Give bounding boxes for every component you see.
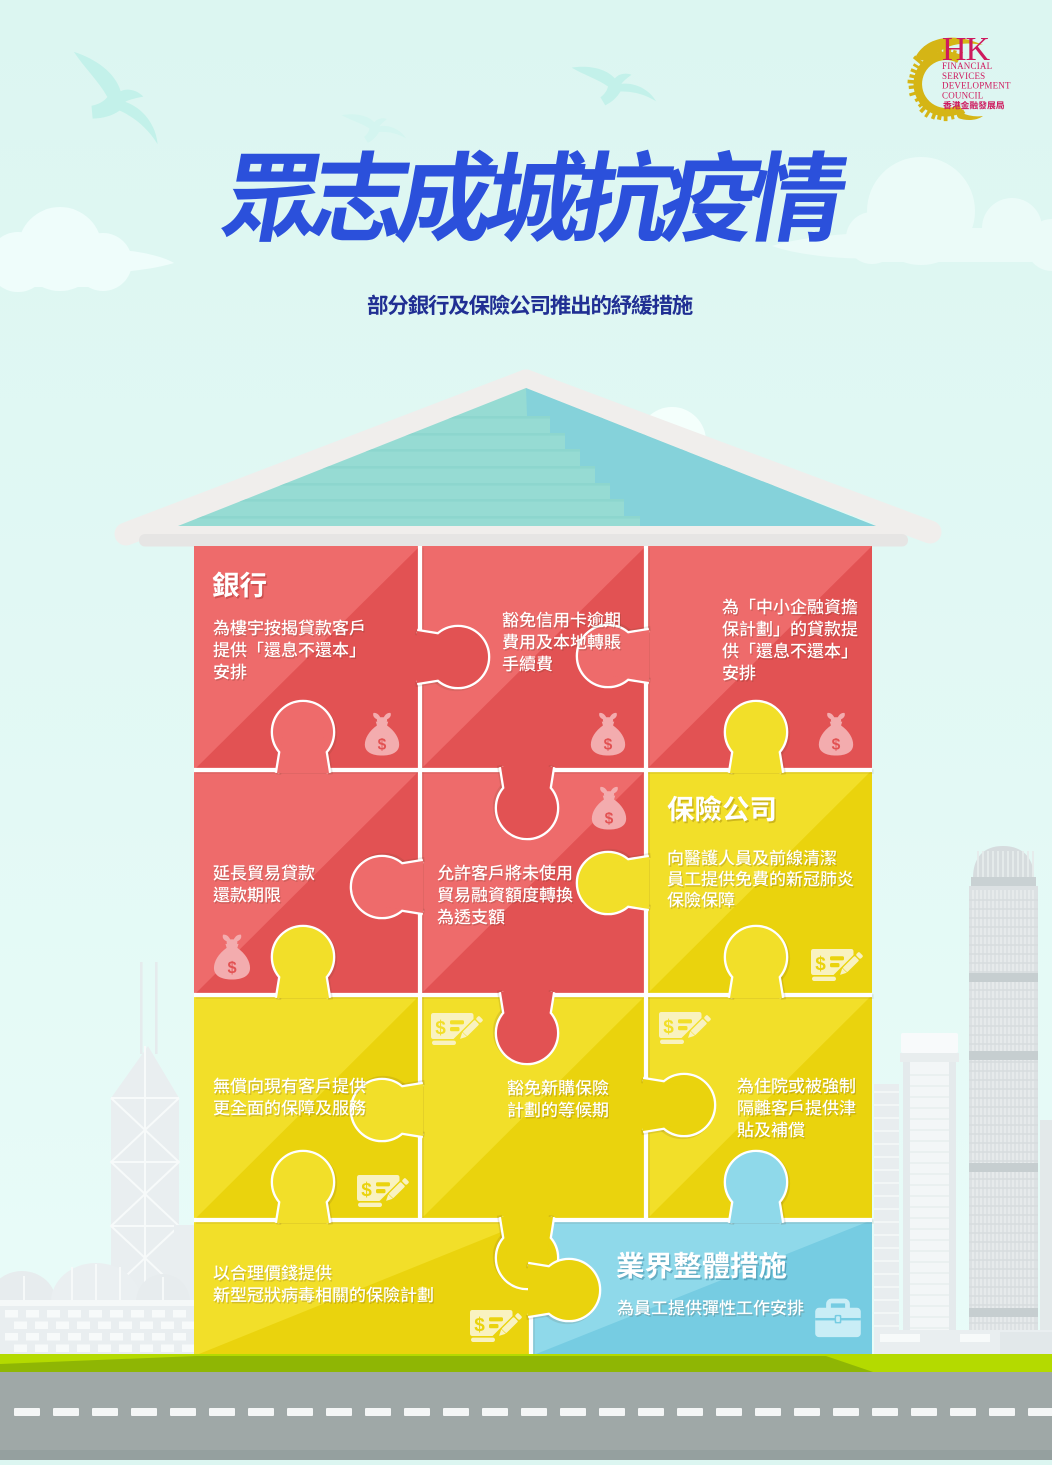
svg-text:$: $ bbox=[361, 1180, 372, 1201]
svg-text:$: $ bbox=[378, 736, 387, 753]
svg-text:SERVICES: SERVICES bbox=[942, 71, 985, 81]
svg-text:FINANCIAL: FINANCIAL bbox=[942, 61, 992, 71]
svg-text:$: $ bbox=[815, 954, 826, 975]
svg-text:$: $ bbox=[605, 810, 614, 827]
svg-text:$: $ bbox=[474, 1315, 485, 1336]
svg-text:$: $ bbox=[227, 959, 236, 977]
svg-text:COUNCIL: COUNCIL bbox=[942, 90, 983, 100]
svg-text:$: $ bbox=[604, 736, 613, 753]
svg-text:$: $ bbox=[435, 1018, 446, 1039]
svg-text:$: $ bbox=[663, 1017, 674, 1038]
svg-text:$: $ bbox=[832, 736, 841, 753]
svg-text:DEVELOPMENT: DEVELOPMENT bbox=[942, 81, 1011, 91]
